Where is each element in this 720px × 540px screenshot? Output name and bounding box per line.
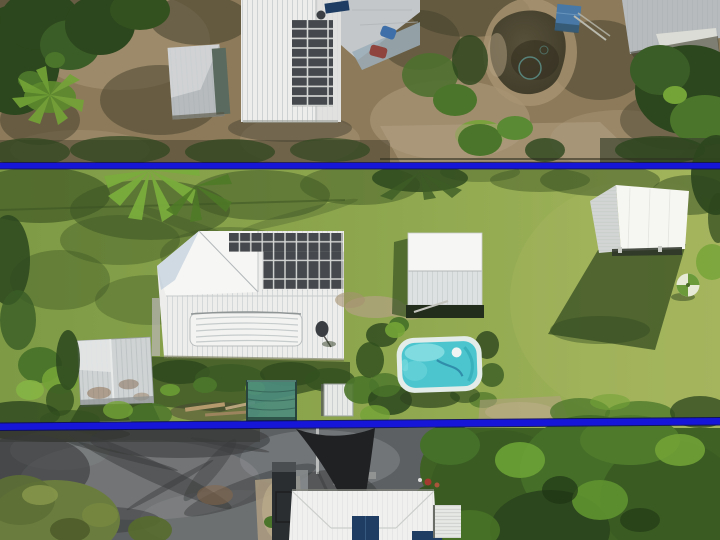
pergola-roof: [190, 312, 302, 346]
left-garden-shed: [77, 337, 153, 407]
shade-net-structure: [247, 381, 296, 422]
top-house-solar-array: [292, 20, 333, 106]
cabana-roof-top: [408, 233, 482, 271]
shed-roof: [616, 185, 689, 251]
bottom-neighbour-property: [0, 415, 720, 540]
fence-shadow: [380, 158, 720, 160]
red-object: [425, 479, 432, 486]
main-house-solar-row: [229, 233, 343, 252]
white-deck: [434, 505, 461, 538]
aerial-photo-canvas: [0, 0, 720, 540]
main-house-solar-block: [263, 252, 343, 289]
boundary-line-top: [0, 163, 720, 169]
top-neighbour-property: [0, 0, 720, 170]
aerial-photo: [0, 0, 720, 540]
swimming-pool: [396, 336, 483, 394]
top-house-satellite-dish: [317, 11, 326, 20]
side-deck: [152, 298, 160, 356]
top-left-shed: [168, 44, 231, 120]
listed-property: [0, 135, 720, 430]
pool-cabana: [389, 233, 484, 333]
